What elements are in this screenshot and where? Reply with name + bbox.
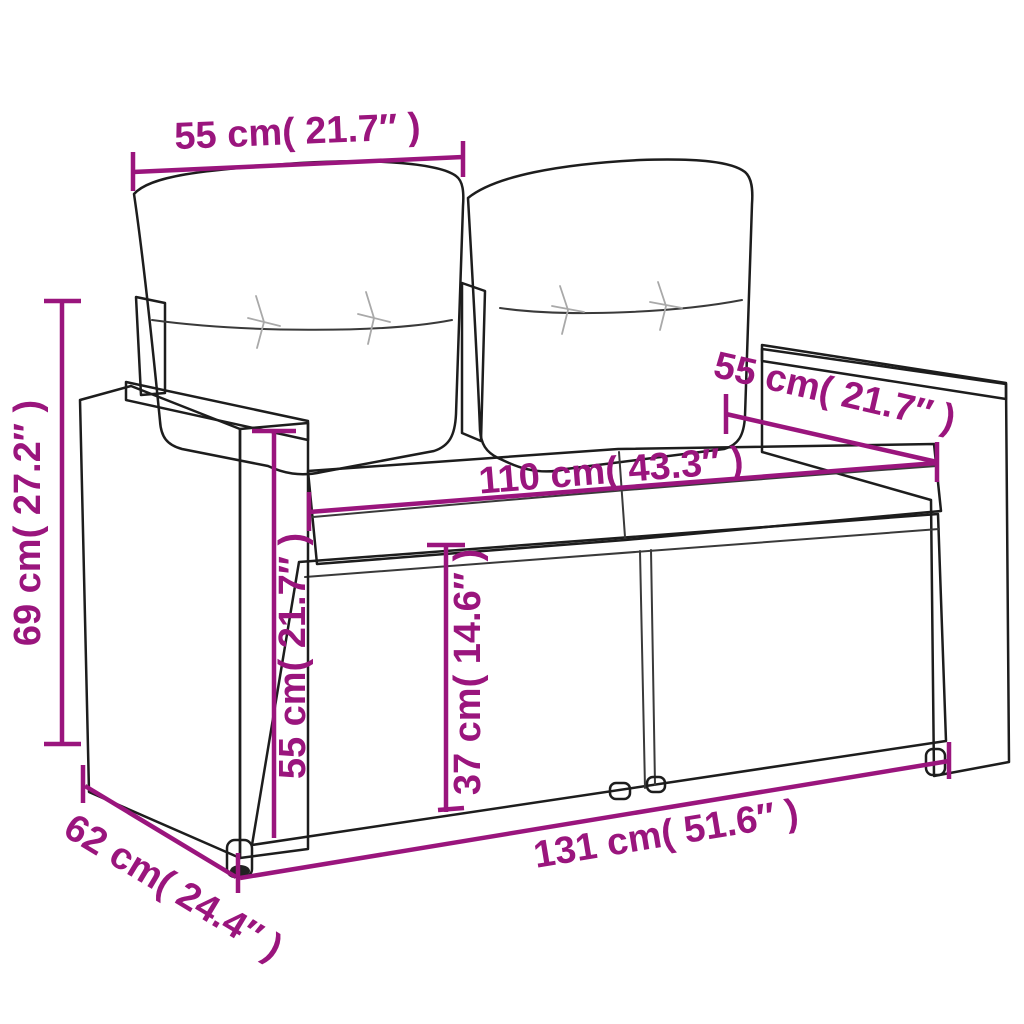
sofa-dimension-illustration: 55 cm( 21.7″ ) 69 cm( 27.2″ ) 55 cm( 21.… xyxy=(0,0,1024,1024)
sofa-illustration xyxy=(80,160,1009,878)
dimension-tick xyxy=(438,808,464,810)
back-frame-posts xyxy=(136,283,485,441)
dimension-overall-height: 69 cm( 27.2″ ) xyxy=(7,301,81,744)
dimension-label: 55 cm( 21.7″ ) xyxy=(174,106,422,158)
dimension-back-cushion-width: 55 cm( 21.7″ ) xyxy=(133,106,463,191)
dimension-overall-width: 131 cm( 51.6″ ) xyxy=(238,742,949,893)
dimension-armrest-depth: 55 cm( 21.7″ ) xyxy=(710,344,960,482)
dimension-armrest-height: 55 cm( 21.7″ ) xyxy=(252,431,314,838)
back-cushion-left xyxy=(134,161,463,474)
sofa-base xyxy=(252,514,946,845)
dimension-label: 55 cm( 21.7″ ) xyxy=(272,533,314,779)
dimension-label: 131 cm( 51.6″ ) xyxy=(531,792,802,877)
dimension-label: 69 cm( 27.2″ ) xyxy=(7,400,49,646)
product-dimension-diagram: 55 cm( 21.7″ ) 69 cm( 27.2″ ) 55 cm( 21.… xyxy=(0,0,1024,1024)
dimension-overall-depth: 62 cm( 24.4″ ) xyxy=(57,765,290,969)
dimension-seat-height: 37 cm( 14.6″ ) xyxy=(427,545,489,812)
dimension-label: 37 cm( 14.6″ ) xyxy=(447,549,489,795)
back-cushion-right xyxy=(468,160,752,472)
